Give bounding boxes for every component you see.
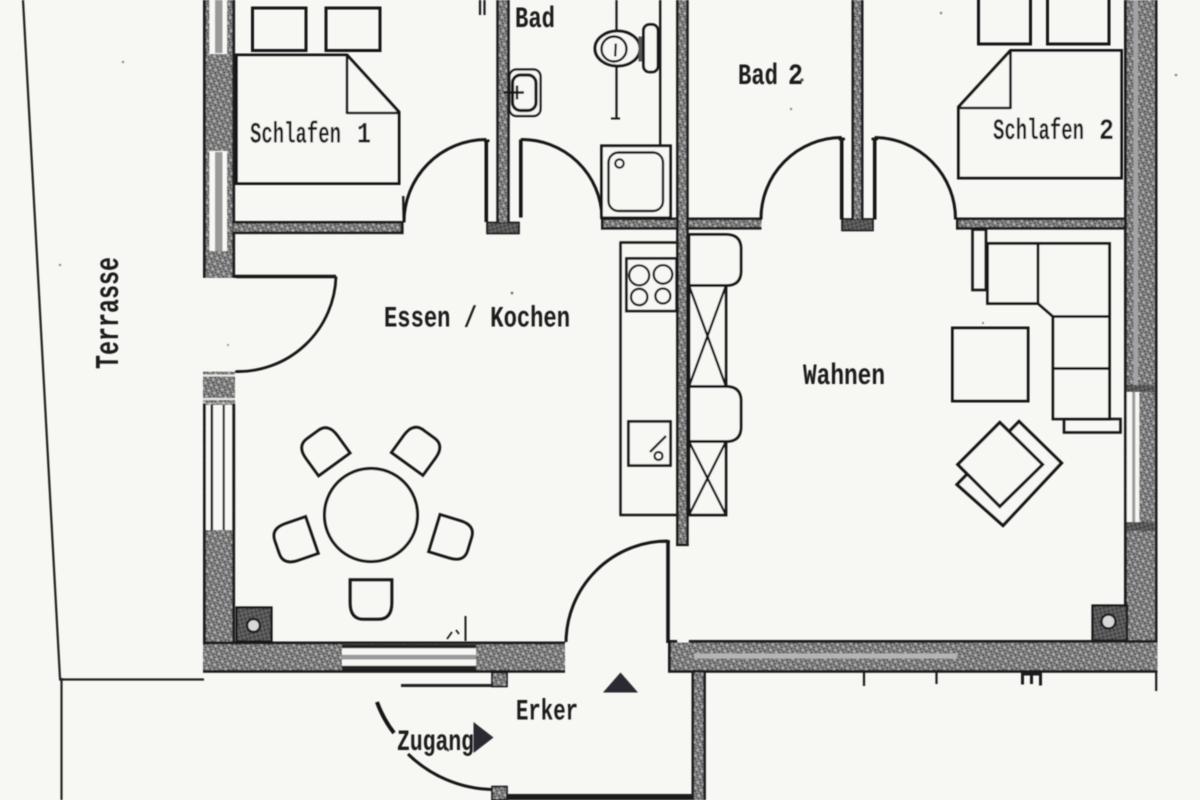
svg-text:Essen / Kochen: Essen / Kochen [384,303,570,337]
svg-text:2: 2 [788,60,803,94]
svg-text:2: 2 [1099,115,1114,149]
svg-text:Schlafen: Schlafen [250,119,341,153]
svg-text:Wahnen: Wahnen [803,360,885,394]
svg-text:Erker: Erker [516,696,578,730]
svg-text:Bad: Bad [738,60,778,94]
svg-text:Zugang: Zugang [397,726,474,760]
svg-text:Schlafen: Schlafen [993,115,1084,149]
svg-text:1: 1 [357,119,371,153]
svg-text:Terrasse: Terrasse [91,257,128,369]
svg-text:Bad: Bad [515,3,555,37]
